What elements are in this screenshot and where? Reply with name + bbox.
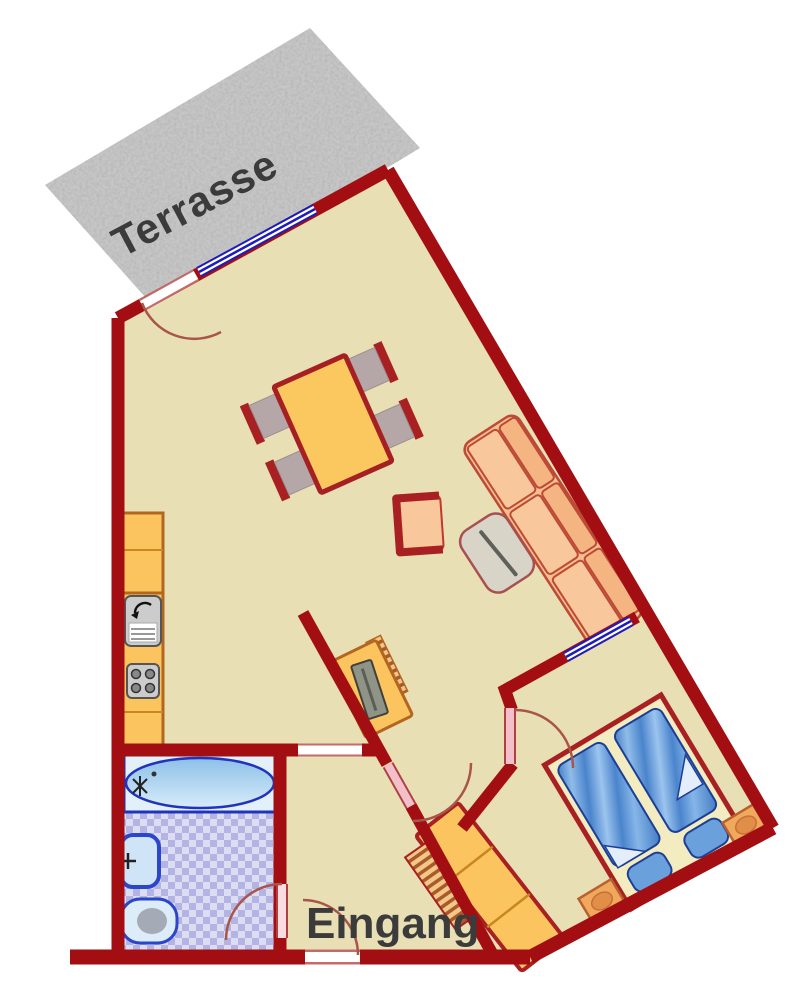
washbasin (120, 835, 159, 887)
bathtub (124, 755, 277, 812)
kitchen-sink (125, 596, 161, 646)
stove (127, 664, 159, 698)
armchair (394, 494, 444, 553)
toilet (121, 899, 177, 943)
floor-plan: Terrasse Eingang (0, 0, 800, 1000)
entrance-label: Eingang (306, 899, 480, 948)
floor-plan-canvas: Terrasse Eingang (0, 0, 800, 1000)
kitchen-counter (122, 513, 163, 745)
